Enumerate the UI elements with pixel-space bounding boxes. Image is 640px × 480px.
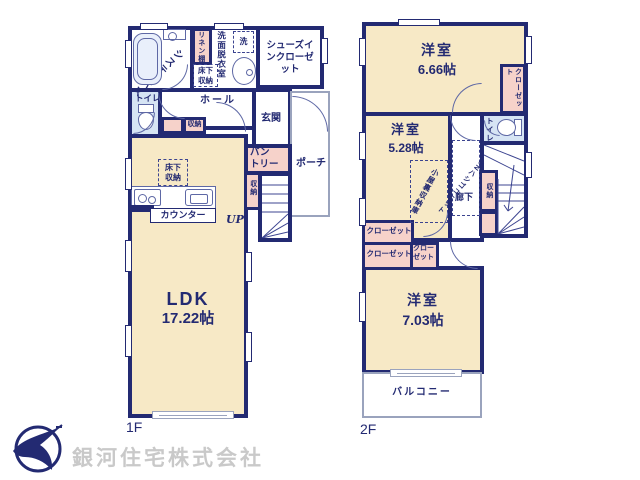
room3-name-label: 洋室	[362, 292, 484, 310]
shoes-closet-label: シューズインクローゼット	[262, 40, 318, 76]
underfloor-storage-washroom: 床下収納	[193, 64, 218, 87]
stairs-treads-1f	[262, 176, 288, 238]
room1-name-label: 洋室	[362, 42, 512, 60]
window	[359, 38, 366, 66]
closet-c-label: クローゼット	[413, 245, 434, 263]
window	[359, 132, 366, 160]
window	[359, 292, 366, 322]
window	[214, 23, 244, 30]
washer-label: 洗	[240, 37, 248, 47]
kitchen-sink-icon	[185, 189, 213, 206]
floor2-label: 2F	[360, 421, 376, 439]
window	[245, 252, 252, 282]
window	[321, 38, 328, 64]
hall-storage-label: 収納	[188, 121, 202, 130]
underfloor-storage-kitchen: 床下収納	[158, 159, 188, 186]
hall-storage-box: 収納	[183, 117, 206, 134]
floor-plan-canvas: 収納 洗 床下収納 床下収納 カウンター システムバス リネン棚 洗面脱衣室 シ…	[0, 0, 640, 480]
porch-label: ポーチ	[296, 158, 326, 171]
closet-b-label: クローゼット	[366, 249, 412, 258]
washing-machine-icon: 洗	[233, 31, 254, 53]
pantry-label: パントリー	[250, 147, 279, 171]
ldk-name-label: LDK	[128, 288, 248, 311]
balcony-sliding-door	[390, 369, 462, 377]
stairs-storage-1f-label: 収納	[248, 180, 257, 196]
window	[140, 23, 168, 30]
closet-a-label: クローゼット	[366, 226, 412, 235]
ldk-size-label: 17.22帖	[128, 310, 248, 329]
closet-room1-label: クローゼット	[504, 68, 522, 112]
underfloor-storage-washroom-label: 床下収納	[198, 66, 213, 85]
bath-counter-icon	[163, 29, 186, 40]
company-logo-bird-icon	[10, 418, 68, 478]
window	[125, 40, 132, 68]
linen-label: リネン棚	[196, 31, 205, 63]
washbasin-icon	[232, 57, 256, 85]
hall-cabinet-box	[161, 117, 184, 134]
window	[125, 240, 132, 272]
window	[125, 325, 132, 357]
stairs-up-label: UP	[226, 213, 244, 227]
window	[525, 152, 532, 178]
floor1-label: 1F	[126, 419, 142, 437]
room-ldk	[128, 134, 248, 418]
room2-size-label: 5.28帖	[366, 141, 446, 156]
stairs-treads-2f	[484, 145, 524, 234]
underfloor-storage-kitchen-label: 床下収納	[165, 163, 181, 183]
stove-icon	[134, 189, 161, 206]
toilet-1f-label: トイレ	[135, 93, 161, 104]
counter-label: カウンター	[150, 208, 216, 223]
washroom-label: 洗面脱衣室	[216, 31, 227, 79]
balcony-label: バルコニー	[362, 387, 482, 400]
genkan-label: 玄関	[261, 113, 281, 126]
window	[525, 36, 532, 64]
ldk-sliding-door	[152, 411, 234, 419]
bathtub-icon	[133, 33, 162, 85]
window	[359, 198, 366, 226]
room3-size-label: 7.03帖	[362, 312, 484, 330]
window	[125, 158, 132, 190]
room1-size-label: 6.66帖	[362, 62, 512, 78]
room2-name-label: 洋室	[366, 122, 446, 138]
company-name: 銀河住宅株式会社	[72, 442, 264, 472]
window	[245, 332, 252, 362]
window	[398, 19, 440, 26]
room3-door-arc	[450, 241, 478, 269]
